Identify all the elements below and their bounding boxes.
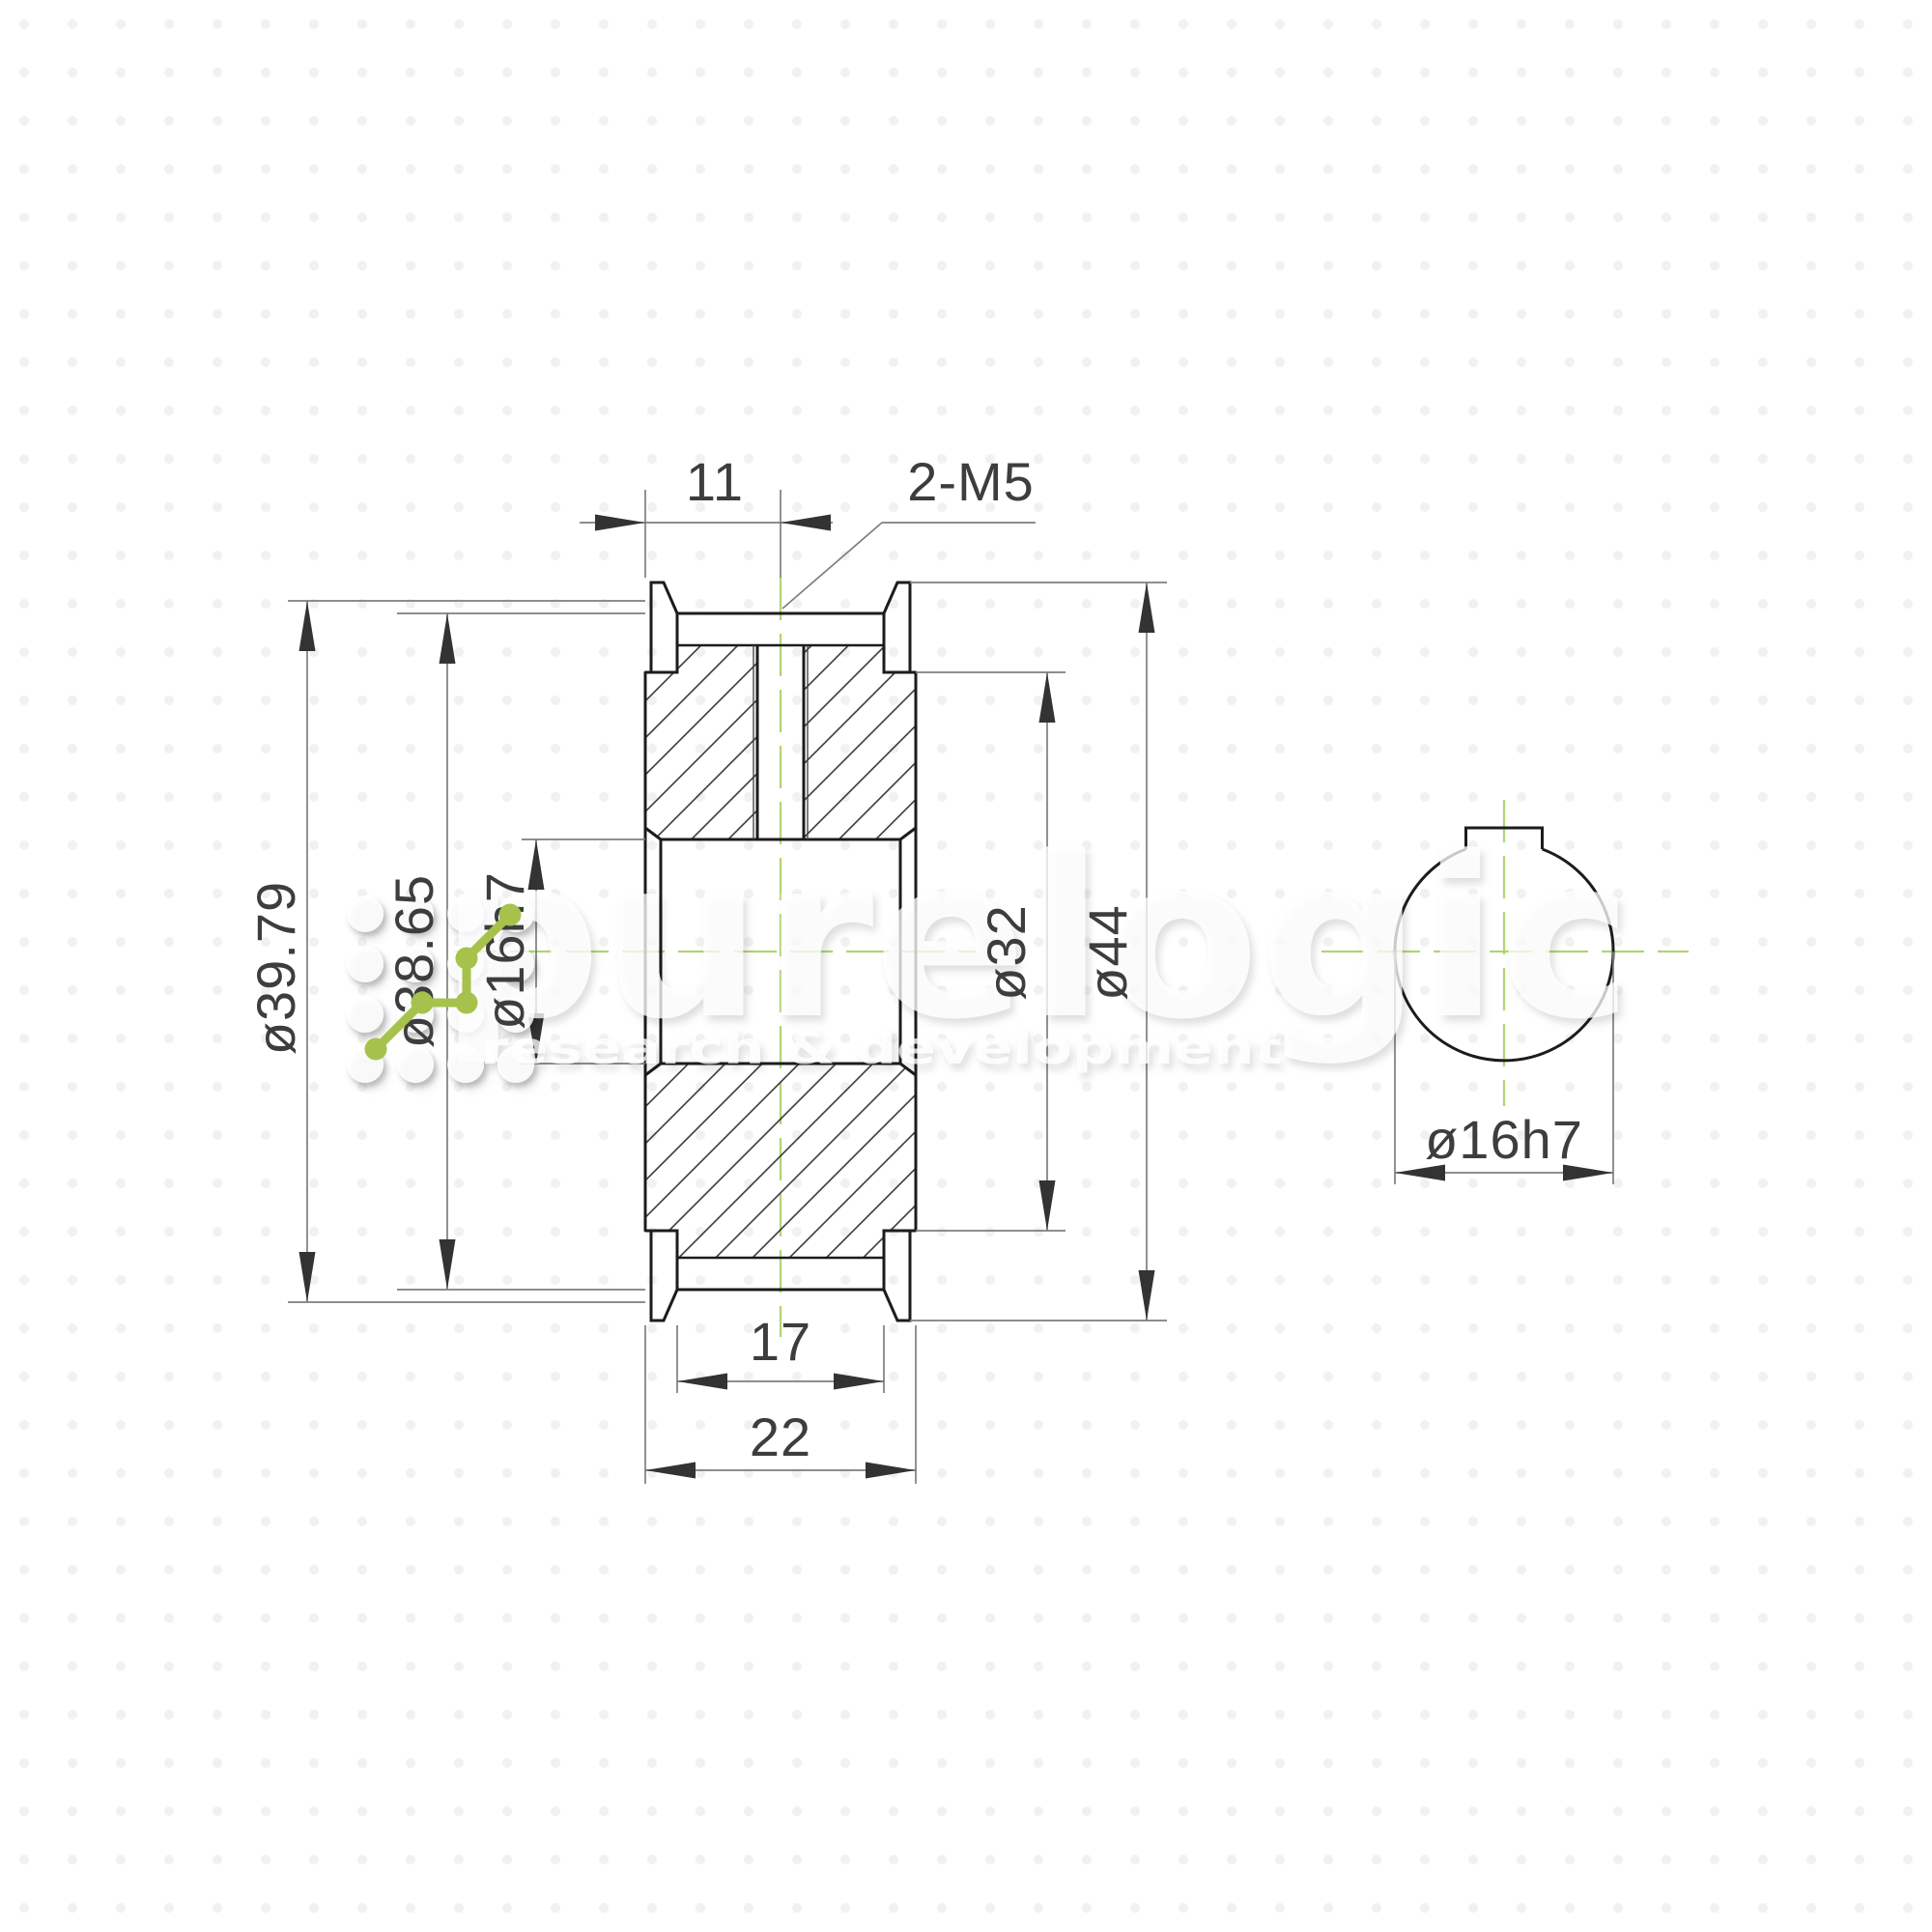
label-outside-diameter: ø38.65 <box>384 874 444 1048</box>
label-hub-step-diameter: ø32 <box>976 904 1037 1001</box>
label-belt-width-17: 17 <box>750 1311 811 1372</box>
label-thread-2-m5: 2-M5 <box>907 451 1035 512</box>
lower-hatched-section <box>645 1064 916 1258</box>
label-pitch-diameter: ø39.79 <box>245 881 306 1055</box>
flange-bottom-left <box>645 1231 677 1321</box>
label-overall-width-22: 22 <box>750 1406 811 1467</box>
label-end-view-bore: ø16h7 <box>1425 1109 1583 1170</box>
flange-top-right <box>884 582 916 672</box>
label-flange-diameter: ø44 <box>1077 904 1138 1001</box>
label-bore-diameter: ø16h7 <box>474 871 535 1030</box>
flange-bottom-right <box>884 1231 916 1321</box>
technical-drawing-sheet: purelogic research & development 11 2-M5… <box>0 0 1932 1932</box>
label-width-11: 11 <box>686 451 744 512</box>
watermark-tagline-text: research & development <box>480 1022 1282 1074</box>
flange-top-left <box>645 582 677 672</box>
